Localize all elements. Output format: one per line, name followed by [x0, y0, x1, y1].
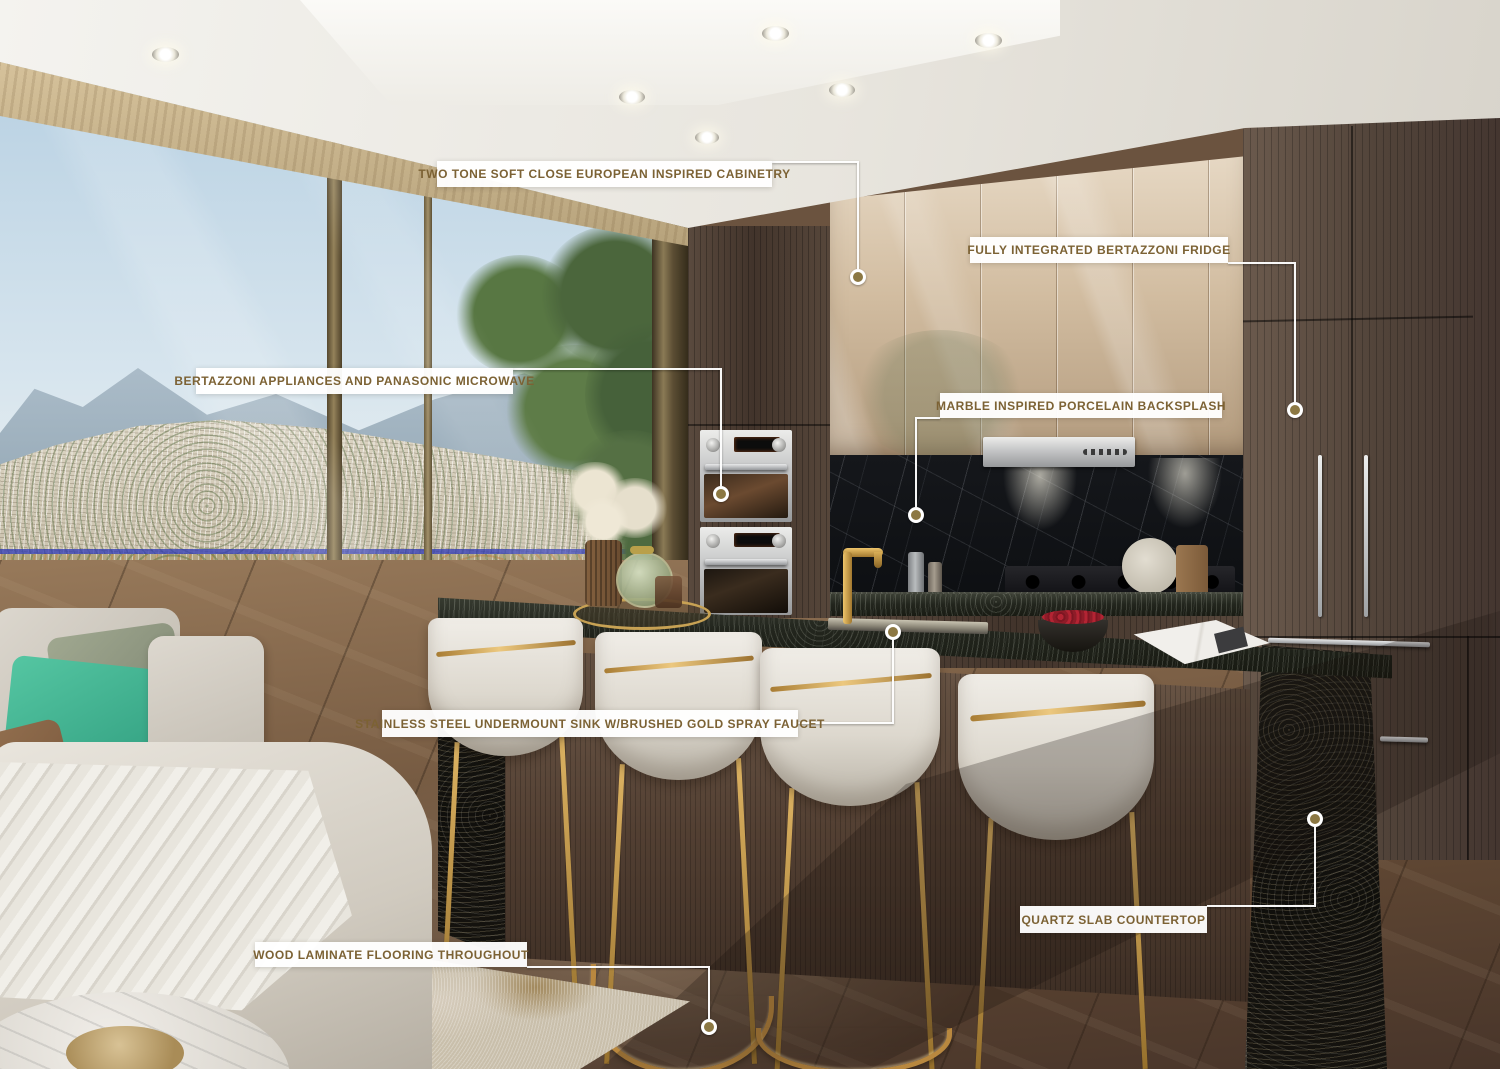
oven-knob [706, 534, 720, 548]
callout-label-appliances: BERTAZZONI APPLIANCES AND PANASONIC MICR… [196, 368, 513, 394]
oven-handle [705, 464, 787, 470]
callout-label-sink: STAINLESS STEEL UNDERMOUNT SINK W/BRUSHE… [382, 710, 798, 737]
gold-faucet-body [843, 552, 852, 624]
fridge-handle [1318, 455, 1322, 617]
oven-handle [705, 559, 787, 565]
oven-knob [706, 438, 720, 452]
fridge-handle [1364, 455, 1368, 617]
callout-label-flooring: WOOD LAMINATE FLOORING THROUGHOUT [255, 942, 527, 967]
rendering-canvas: TWO TONE SOFT CLOSE EUROPEAN INSPIRED CA… [0, 0, 1500, 1069]
round-cutting-board [1122, 538, 1178, 594]
recessed-light [975, 33, 1002, 48]
cabinet-seam [1243, 316, 1473, 323]
recessed-light [762, 26, 789, 41]
panasonic-microwave-oven [700, 430, 792, 522]
bertazzoni-wall-oven [700, 527, 792, 615]
range-hood [983, 437, 1135, 467]
oven-glass [704, 569, 788, 613]
recessed-light [829, 83, 855, 97]
oven-knob [772, 438, 786, 452]
gold-faucet-head [874, 552, 882, 568]
white-flowers [575, 498, 631, 546]
callout-label-cabinetry: TWO TONE SOFT CLOSE EUROPEAN INSPIRED CA… [437, 161, 772, 187]
oven-knob [772, 534, 786, 548]
teapot-lid [630, 546, 654, 554]
barstool-seat [595, 632, 762, 780]
hood-buttons [1083, 449, 1127, 455]
berries [1042, 610, 1104, 624]
recessed-light [619, 90, 645, 104]
oven-glass [704, 474, 788, 518]
cabinet-seam [1351, 126, 1353, 656]
cabinet-seam [688, 424, 832, 426]
recessed-light [152, 47, 179, 62]
recessed-light [695, 131, 719, 144]
callout-label-backsplash: MARBLE INSPIRED PORCELAIN BACKSPLASH [940, 393, 1222, 418]
amber-cup [655, 576, 682, 608]
callout-label-countertop: QUARTZ SLAB COUNTERTOP [1020, 906, 1207, 933]
callout-label-fridge: FULLY INTEGRATED BERTAZZONI FRIDGE [970, 237, 1228, 263]
